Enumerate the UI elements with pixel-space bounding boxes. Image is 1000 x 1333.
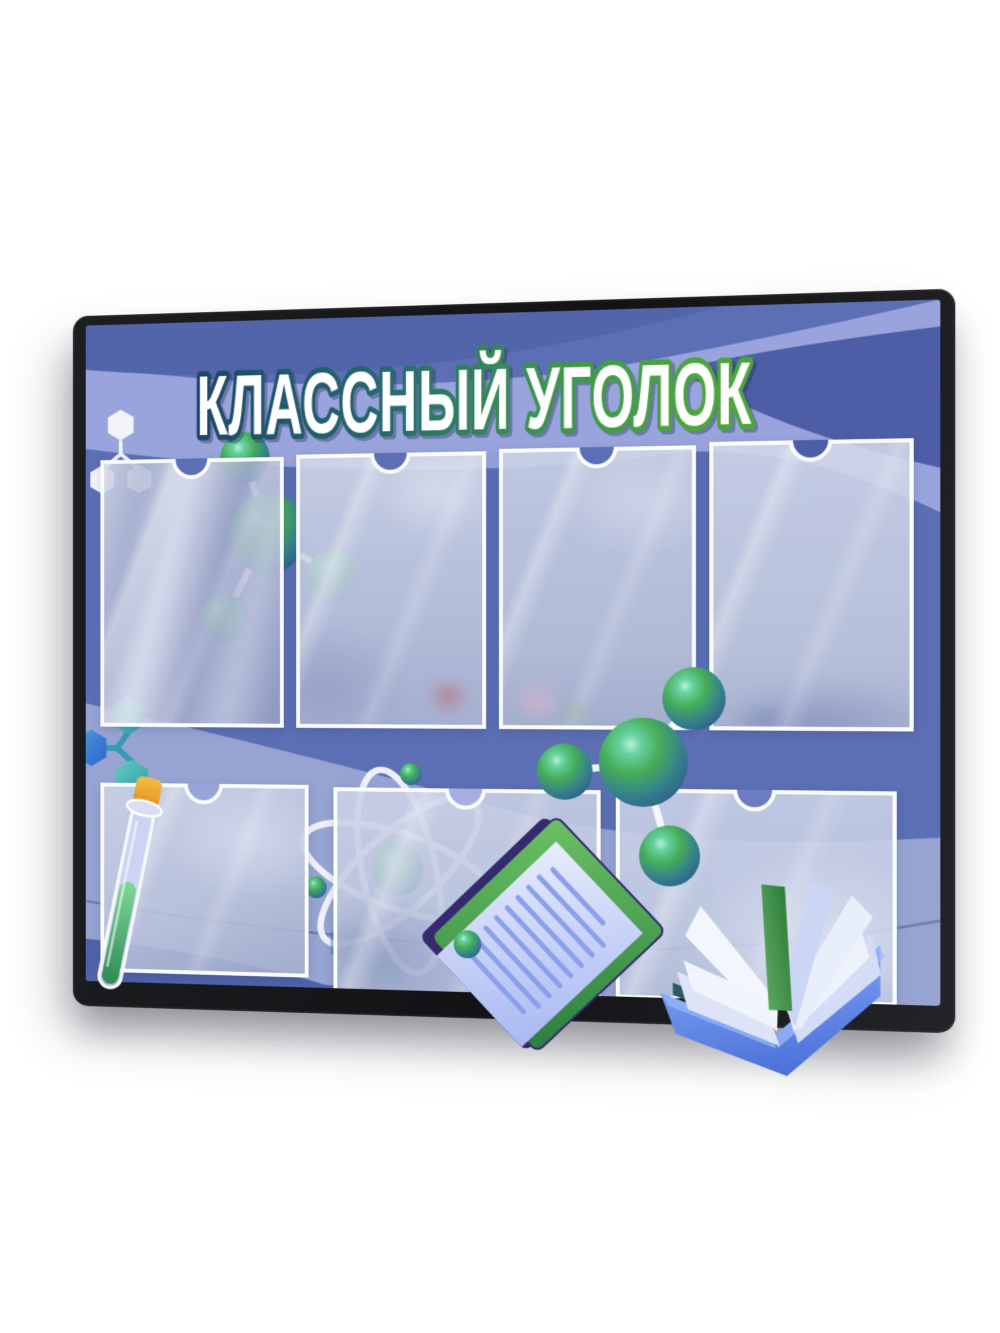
pocket-backdrop [104,461,280,724]
pocket-backdrop [620,792,893,1002]
pocket-top-4 [709,438,913,731]
pocket-bottom-1 [100,783,308,978]
board-face: КЛАССНЫЙ УГОЛОК КЛАССНЫЙ УГОЛОК [86,299,941,1006]
classroom-board: КЛАССНЫЙ УГОЛОК КЛАССНЫЙ УГОЛОК [73,289,955,1034]
pocket-backdrop [104,787,305,974]
pocket-top-1 [100,457,283,728]
pocket-bottom-3 [616,788,897,1006]
pocket-backdrop [713,442,909,727]
pocket-top-3 [499,445,696,730]
pocket-bottom-2 [333,787,600,1004]
pocket-backdrop [300,455,482,725]
pocket-backdrop [337,791,596,1000]
product-scene: КЛАССНЫЙ УГОЛОК КЛАССНЫЙ УГОЛОК [0,0,1000,1333]
pocket-backdrop [503,449,692,726]
pocket-top-2 [296,451,486,729]
board-title: КЛАССНЫЙ УГОЛОК [197,342,752,454]
